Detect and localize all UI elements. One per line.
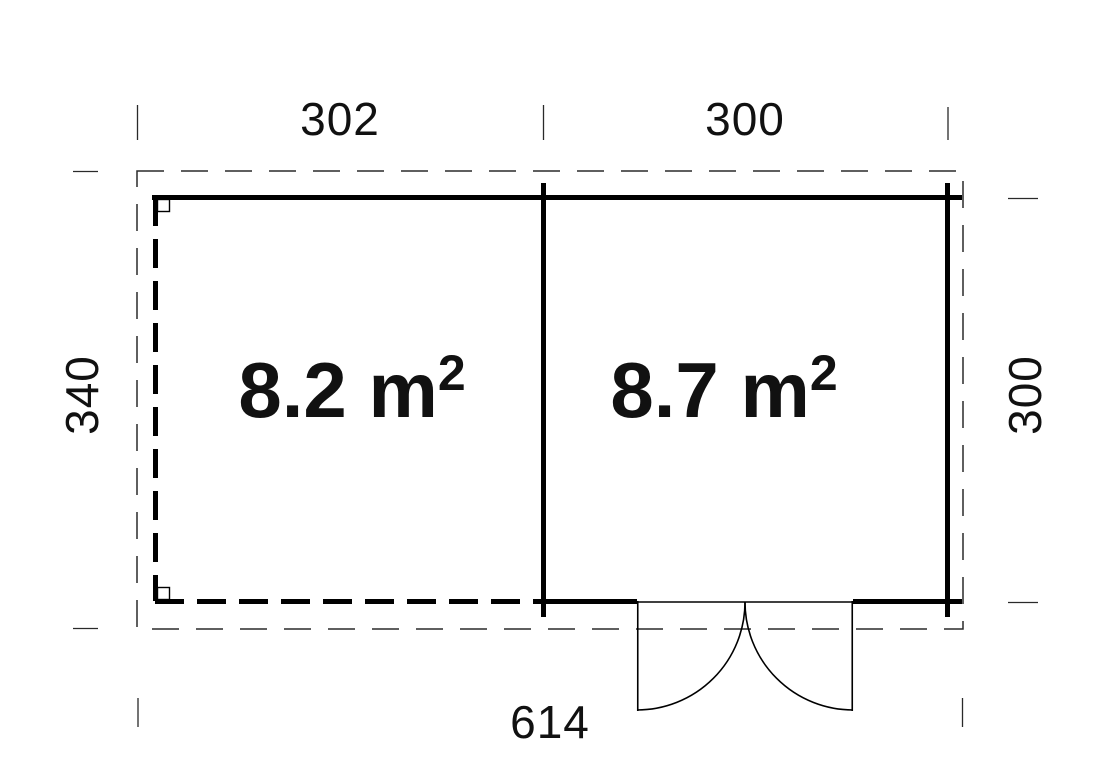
room-right-area-value: 8.7 m: [610, 346, 809, 434]
dimension-right-height: 300: [1002, 355, 1048, 435]
room-left-area-value: 8.2 m: [238, 346, 437, 434]
room-right-area-superscript: 2: [810, 345, 838, 401]
dimension-top-left-width: 302: [240, 96, 440, 142]
dimension-top-right-width: 300: [645, 96, 845, 142]
floor-plan-canvas: 302 300 340 300 614 8.2 m2 8.7 m2: [0, 0, 1099, 781]
door-swing-arc-right: [745, 602, 853, 710]
door-swing-arc-left: [637, 602, 745, 710]
floor-plan-drawing: [0, 0, 1099, 781]
room-left-area-label: 8.2 m2: [238, 351, 465, 429]
corner-marker-bottom-left: [158, 588, 170, 600]
dimension-left-height: 340: [59, 355, 105, 435]
corner-marker-top-left: [158, 200, 170, 212]
dimension-bottom-total: 614: [450, 699, 650, 745]
room-left-area-superscript: 2: [438, 345, 466, 401]
room-right-area-label: 8.7 m2: [610, 351, 837, 429]
